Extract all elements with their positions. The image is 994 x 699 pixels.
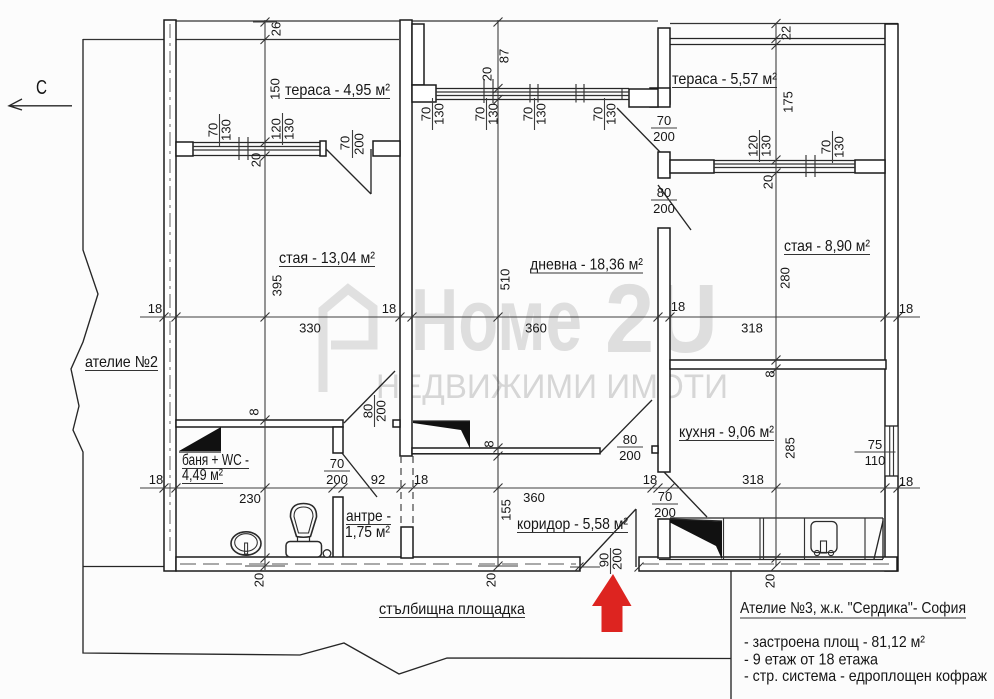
- svg-text:200: 200: [653, 129, 675, 144]
- svg-text:175: 175: [781, 91, 796, 113]
- svg-text:130: 130: [832, 136, 847, 158]
- svg-text:130: 130: [759, 135, 774, 157]
- svg-text:18: 18: [382, 301, 396, 316]
- svg-text:110: 110: [865, 453, 886, 468]
- svg-text:155: 155: [499, 499, 514, 521]
- svg-text:80: 80: [623, 432, 637, 447]
- svg-text:- застроена площ - 81,12 м²: - застроена площ - 81,12 м²: [744, 634, 925, 651]
- svg-text:18: 18: [414, 472, 428, 487]
- svg-text:антре -: антре -: [346, 508, 391, 525]
- svg-text:18: 18: [671, 299, 685, 314]
- svg-text:20: 20: [761, 175, 776, 189]
- svg-text:150: 150: [268, 78, 283, 100]
- svg-text:1,75 м²: 1,75 м²: [345, 524, 391, 541]
- svg-text:коридор - 5,58 м²: коридор - 5,58 м²: [517, 516, 629, 533]
- svg-text:С: С: [36, 77, 47, 99]
- svg-text:130: 130: [486, 103, 501, 125]
- svg-text:130: 130: [604, 103, 619, 125]
- svg-text:87: 87: [497, 49, 512, 63]
- svg-text:стълбищна площадка: стълбищна площадка: [379, 601, 525, 618]
- svg-text:кухня - 9,06 м²: кухня - 9,06 м²: [679, 424, 775, 441]
- svg-text:стая - 8,90 м²: стая - 8,90 м²: [784, 238, 871, 255]
- svg-text:360: 360: [525, 321, 547, 336]
- svg-text:130: 130: [219, 119, 234, 141]
- svg-text:280: 280: [778, 267, 793, 289]
- svg-text:8: 8: [763, 370, 778, 377]
- svg-text:18: 18: [148, 301, 162, 316]
- svg-text:395: 395: [270, 275, 285, 297]
- svg-text:18: 18: [899, 301, 913, 316]
- svg-text:Номе: Номе: [411, 270, 582, 369]
- svg-text:70: 70: [657, 113, 671, 128]
- svg-text:75: 75: [868, 437, 882, 452]
- svg-text:70: 70: [658, 489, 672, 504]
- svg-text:70: 70: [338, 136, 353, 150]
- svg-text:80: 80: [657, 185, 671, 200]
- svg-text:22: 22: [779, 26, 794, 40]
- svg-text:92: 92: [371, 472, 385, 487]
- svg-text:70: 70: [330, 456, 344, 471]
- svg-text:200: 200: [374, 400, 389, 422]
- svg-text:- стр. система - едроплощен ко: - стр. система - едроплощен кофраж: [744, 668, 987, 685]
- svg-text:18: 18: [899, 474, 913, 489]
- svg-text:200: 200: [619, 448, 641, 463]
- svg-text:8: 8: [247, 408, 262, 415]
- svg-text:8: 8: [482, 440, 497, 447]
- svg-text:200: 200: [654, 505, 676, 520]
- svg-text:20: 20: [484, 573, 499, 587]
- svg-text:200: 200: [352, 133, 367, 155]
- svg-text:26: 26: [269, 22, 284, 36]
- svg-text:200: 200: [610, 548, 625, 570]
- svg-text:510: 510: [498, 269, 513, 291]
- svg-text:130: 130: [282, 118, 297, 140]
- svg-text:Ателие №3, ж.к. "Сердика"- Соф: Ателие №3, ж.к. "Сердика"- София: [740, 600, 966, 617]
- svg-text:4,49 м²: 4,49 м²: [182, 467, 224, 484]
- svg-text:ателие №2: ателие №2: [85, 354, 158, 371]
- svg-text:20: 20: [249, 153, 264, 167]
- svg-text:18: 18: [149, 472, 163, 487]
- svg-text:230: 230: [239, 491, 261, 506]
- svg-text:285: 285: [783, 437, 798, 459]
- svg-text:360: 360: [523, 490, 545, 505]
- svg-text:130: 130: [534, 103, 549, 125]
- svg-text:тераса - 4,95 м²: тераса - 4,95 м²: [285, 82, 391, 99]
- svg-text:18: 18: [643, 472, 657, 487]
- svg-text:130: 130: [432, 103, 447, 125]
- svg-text:330: 330: [299, 321, 321, 336]
- svg-text:- 9 етаж от 18 етажа: - 9 етаж от 18 етажа: [744, 652, 878, 669]
- svg-text:НЕДВИЖИМИ ИМОТИ: НЕДВИЖИМИ ИМОТИ: [376, 368, 728, 406]
- svg-text:20: 20: [252, 573, 267, 587]
- svg-text:200: 200: [653, 201, 675, 216]
- svg-text:318: 318: [741, 321, 763, 336]
- svg-text:20: 20: [763, 574, 778, 588]
- svg-text:20: 20: [480, 67, 495, 81]
- svg-text:стая - 13,04 м²: стая - 13,04 м²: [279, 250, 376, 267]
- svg-text:дневна - 18,36 м²: дневна - 18,36 м²: [530, 257, 644, 274]
- svg-text:тераса - 5,57 м²: тераса - 5,57 м²: [672, 71, 778, 88]
- svg-text:200: 200: [326, 472, 348, 487]
- svg-text:318: 318: [742, 472, 764, 487]
